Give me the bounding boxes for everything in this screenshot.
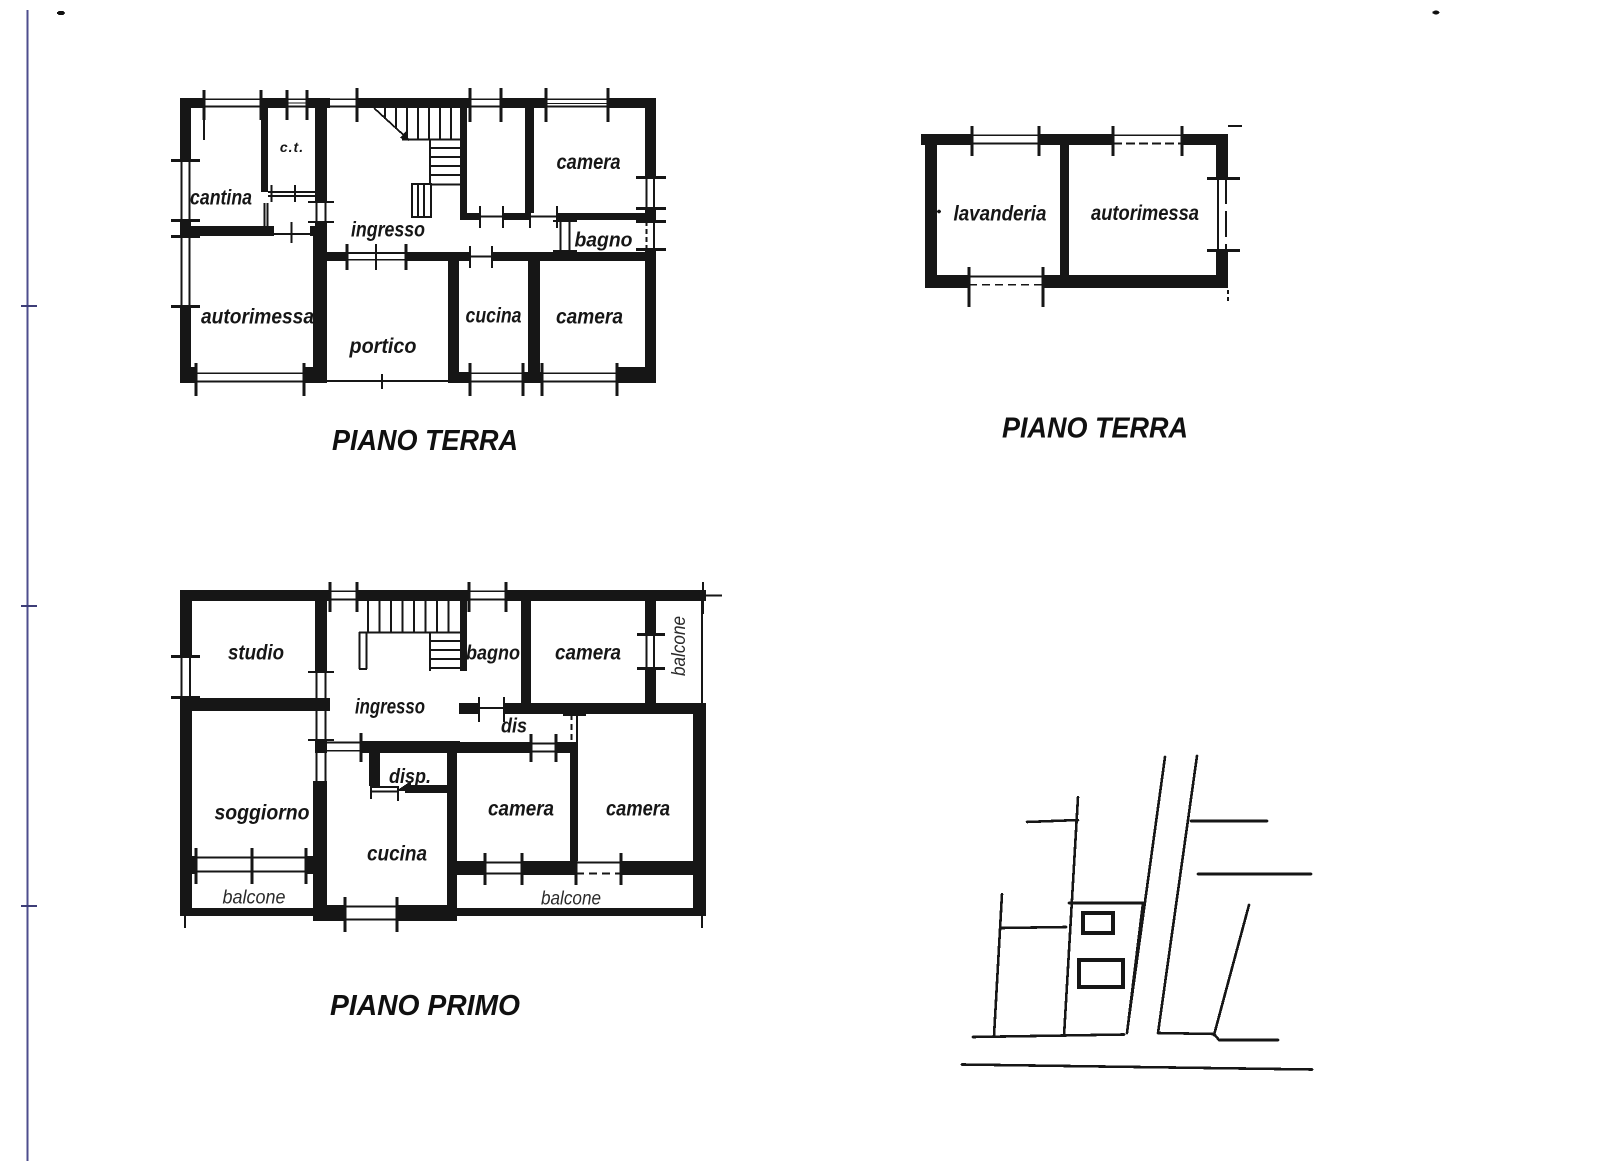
- svg-text:autorimessa: autorimessa: [201, 306, 314, 329]
- svg-text:PIANO TERRA: PIANO TERRA: [1002, 413, 1188, 445]
- svg-text:camera: camera: [556, 306, 623, 329]
- svg-text:dis: dis: [501, 716, 527, 738]
- svg-text:portico: portico: [349, 335, 417, 358]
- svg-text:autorimessa: autorimessa: [1091, 202, 1199, 225]
- svg-text:camera: camera: [606, 798, 670, 821]
- svg-text:bagno: bagno: [466, 643, 520, 665]
- svg-text:cucina: cucina: [466, 305, 522, 328]
- svg-text:balcone: balcone: [669, 616, 690, 676]
- svg-text:bagno: bagno: [575, 230, 633, 252]
- svg-text:PIANO TERRA: PIANO TERRA: [332, 425, 518, 457]
- svg-text:soggiorno: soggiorno: [215, 802, 310, 825]
- svg-text:disp.: disp.: [389, 766, 431, 788]
- svg-text:camera: camera: [555, 642, 621, 665]
- svg-text:cucina: cucina: [367, 843, 427, 866]
- svg-text:studio: studio: [228, 642, 284, 665]
- svg-text:lavanderia: lavanderia: [954, 203, 1047, 226]
- svg-text:camera: camera: [488, 798, 554, 821]
- svg-text:balcone: balcone: [541, 889, 601, 910]
- svg-text:ingresso: ingresso: [351, 219, 425, 242]
- svg-text:cantina: cantina: [190, 187, 252, 210]
- svg-text:ingresso: ingresso: [355, 696, 425, 719]
- svg-text:c.t.: c.t.: [280, 139, 304, 155]
- svg-text:camera: camera: [557, 151, 621, 174]
- svg-text:balcone: balcone: [223, 888, 286, 909]
- svg-text:PIANO PRIMO: PIANO PRIMO: [330, 990, 520, 1022]
